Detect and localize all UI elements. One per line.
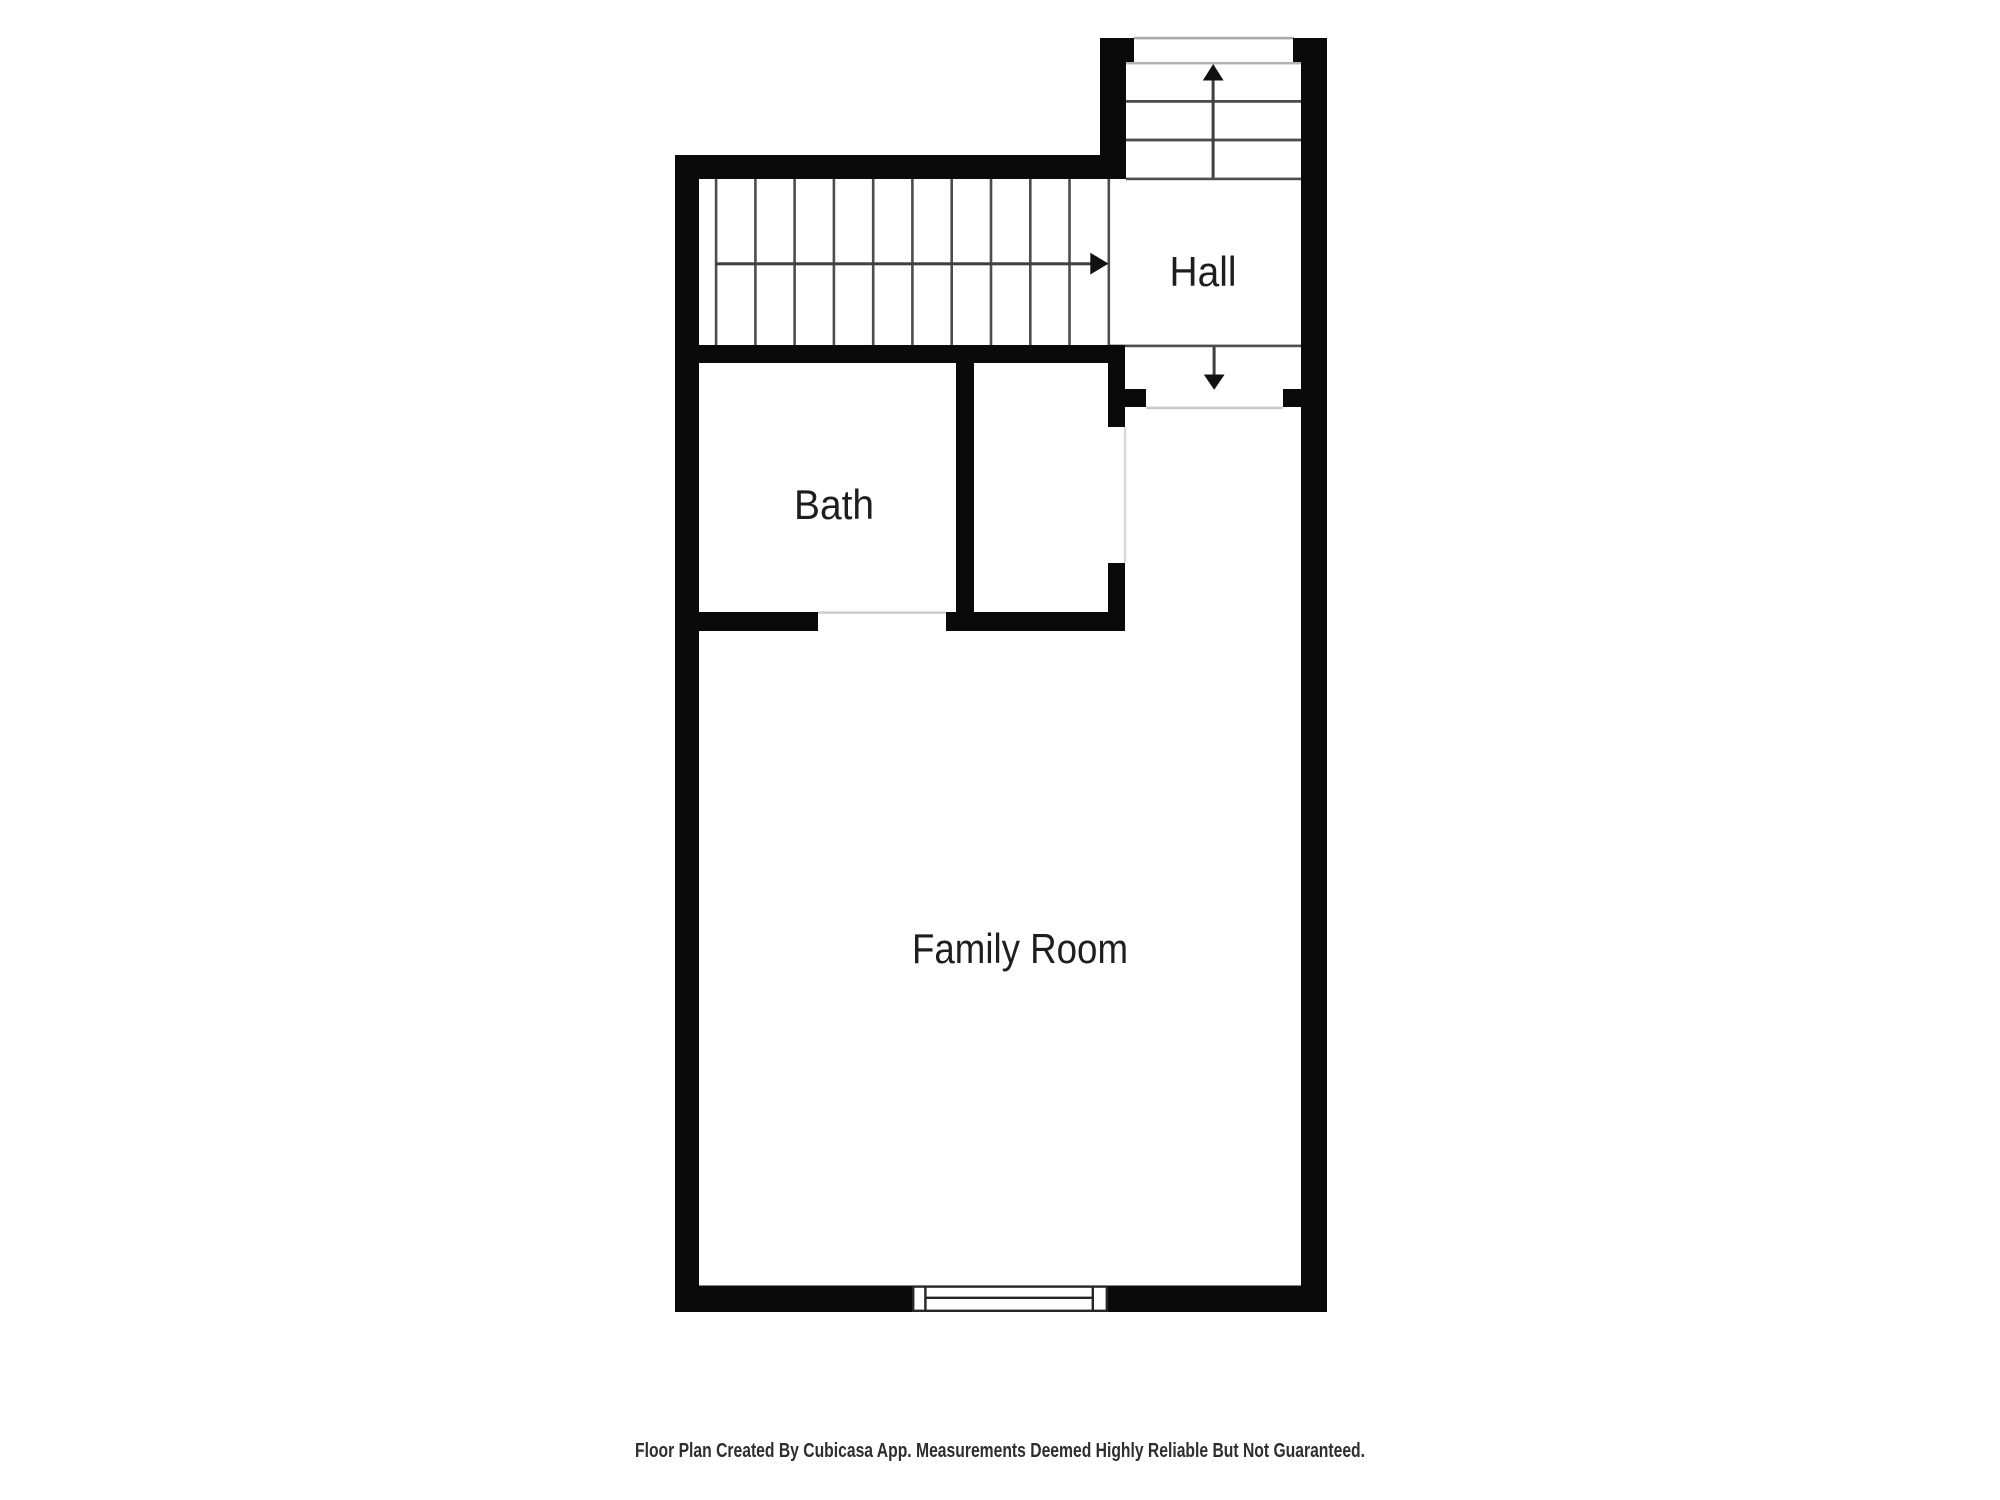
svg-text:Floor Plan Created By Cubicasa: Floor Plan Created By Cubicasa App. Meas… (635, 1439, 1365, 1462)
svg-text:Family Room: Family Room (912, 925, 1128, 972)
svg-text:Hall: Hall (1170, 248, 1237, 295)
svg-text:Bath: Bath (794, 481, 874, 528)
